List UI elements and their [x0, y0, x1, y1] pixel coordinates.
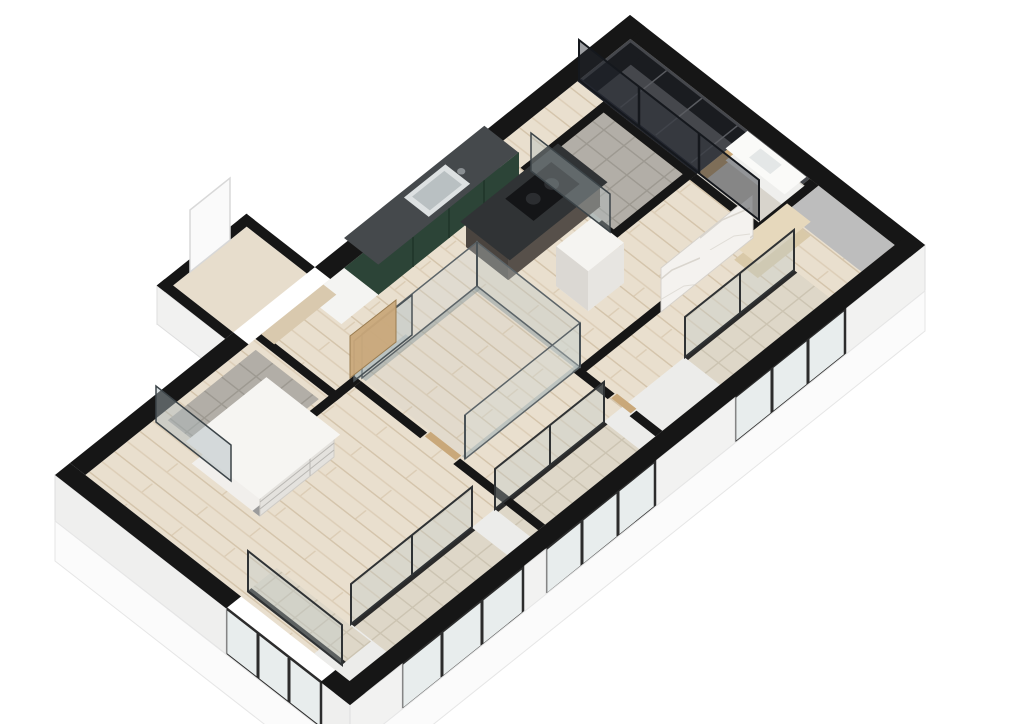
floorplan-render: [0, 0, 1024, 724]
floorplan-svg: [0, 0, 1024, 724]
